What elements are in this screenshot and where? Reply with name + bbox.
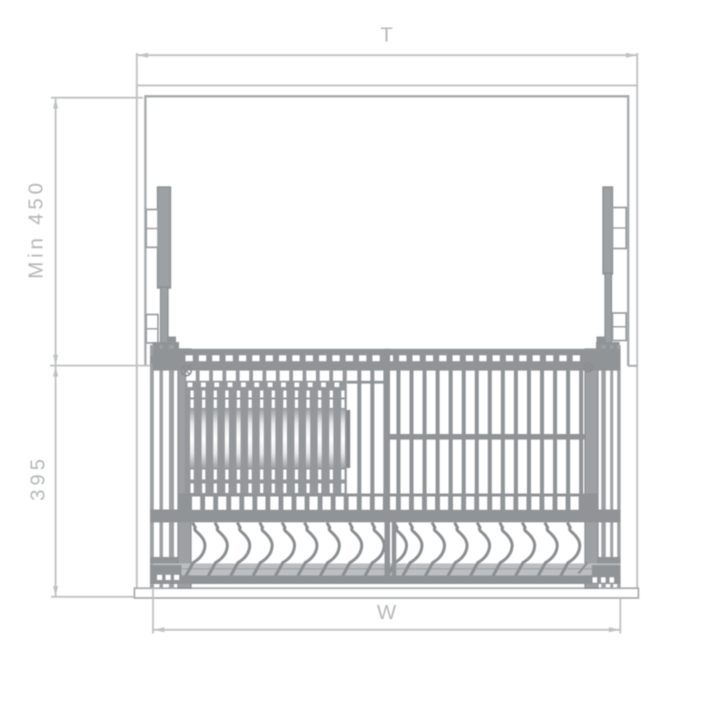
svg-text:Min 450: Min 450 <box>25 179 48 279</box>
svg-text:W: W <box>377 601 397 624</box>
svg-text:T: T <box>380 24 394 47</box>
svg-text:395: 395 <box>27 455 50 501</box>
